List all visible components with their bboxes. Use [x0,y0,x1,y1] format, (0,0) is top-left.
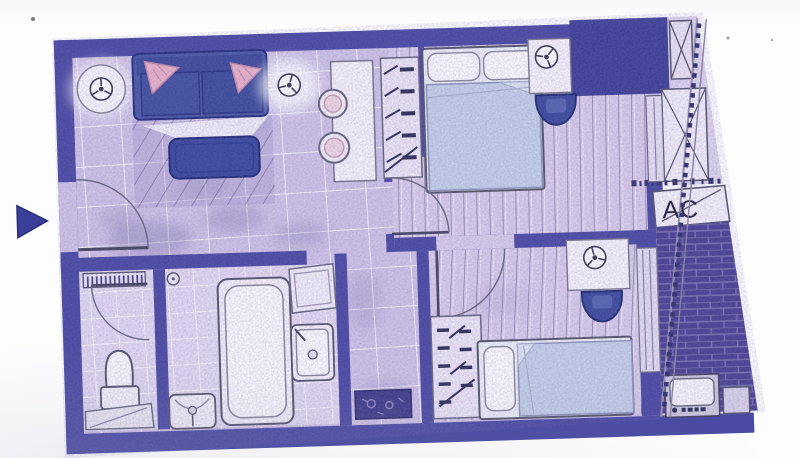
scanned-floor-plan-page: AC [0,0,800,458]
scan-grain-overlay [43,3,776,458]
scan-speck [727,37,730,40]
scan-speck [771,39,773,41]
plan-tilt-group: AC [11,3,776,458]
scan-speck [31,17,35,21]
floor-plan: AC [0,0,800,458]
entry-arrow-marker [17,205,48,238]
